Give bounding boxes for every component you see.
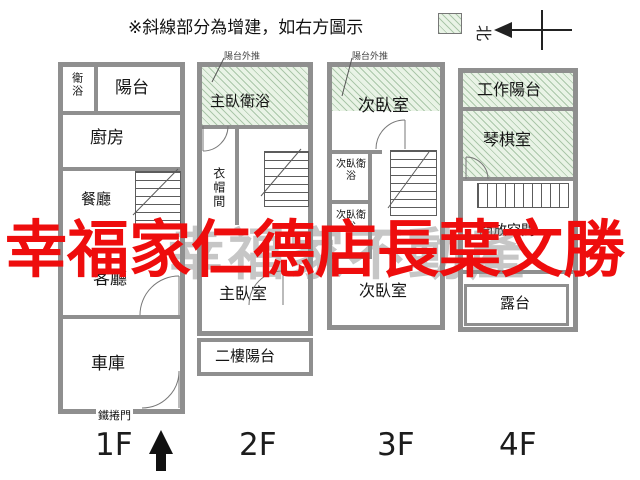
wall (202, 125, 308, 129)
room-work-balcony: 工作陽台 (477, 81, 541, 99)
room-piano-room: 琴棋室 (483, 131, 531, 149)
room-balcony-2f: 二樓陽台 (215, 348, 275, 365)
shutter-door-label: 鐵捲門 (96, 407, 133, 423)
room-bathroom-1-3f: 次臥衛浴 (335, 159, 367, 182)
floor-label-4f: 4F (499, 427, 537, 463)
annotation-balcony-pushout-2f: 陽台外推 (224, 49, 260, 62)
wall (463, 107, 573, 111)
wall (63, 111, 180, 115)
floorplan-sheet: ※斜線部分為增建，如右方圖示 北 衛浴 陽台 廚房 餐廳 客廳 車庫 鐵捲門 陽… (0, 0, 640, 480)
balcony-2f-box: 二樓陽台 (197, 338, 313, 376)
wall (332, 150, 382, 154)
room-bedroom-upper: 次臥室 (358, 97, 409, 117)
room-garage: 車庫 (91, 355, 125, 375)
hatch-legend-swatch (438, 13, 462, 34)
room-bathroom-1f: 衛浴 (70, 72, 83, 98)
floor-label-3f: 3F (377, 427, 415, 463)
legend-note: ※斜線部分為增建，如右方圖示 (128, 13, 363, 38)
floor-label-2f: 2F (239, 427, 277, 463)
annotation-balcony-pushout-3f: 陽台外推 (352, 49, 388, 62)
wall (63, 315, 180, 319)
room-kitchen: 廚房 (90, 129, 124, 149)
wall (94, 67, 98, 113)
north-label: 北 (473, 25, 497, 41)
watermark-agent-red: 幸福家仁德店長葉文勝 (5, 199, 625, 289)
floor-label-1f: 1F (95, 427, 133, 463)
room-terrace: 露台 (500, 295, 530, 312)
room-balcony-1f: 陽台 (115, 79, 149, 99)
wall (463, 177, 573, 181)
room-master-bathroom: 主臥衛浴 (210, 93, 270, 110)
